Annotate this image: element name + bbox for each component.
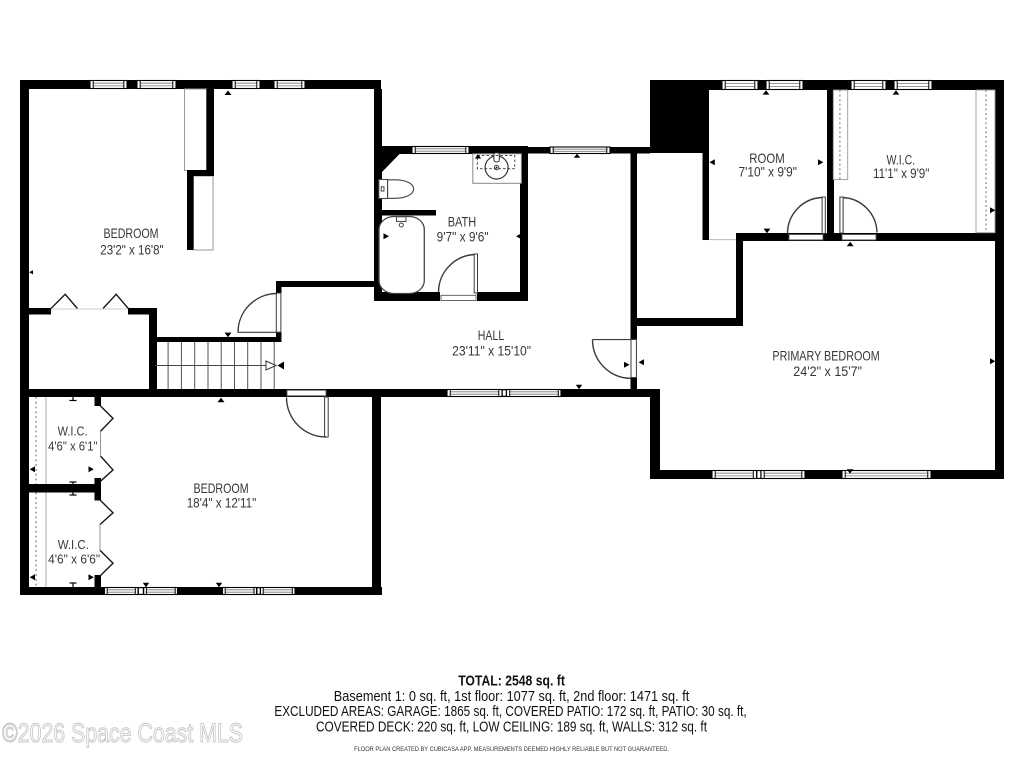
svg-text:©2026 Space Coast MLS: ©2026 Space Coast MLS <box>2 718 243 748</box>
svg-text:9'7" x 9'6": 9'7" x 9'6" <box>437 230 489 245</box>
svg-text:BEDROOM: BEDROOM <box>194 480 249 496</box>
svg-text:BATH: BATH <box>448 215 477 230</box>
svg-text:BEDROOM: BEDROOM <box>104 225 159 241</box>
svg-text:7'10" x 9'9": 7'10" x 9'9" <box>739 165 798 180</box>
svg-text:HALL: HALL <box>478 328 505 343</box>
svg-text:11'1" x 9'9": 11'1" x 9'9" <box>873 166 930 181</box>
svg-text:23'11" x 15'10": 23'11" x 15'10" <box>452 344 531 359</box>
svg-text:FLOOR PLAN CREATED BY CUBICASA: FLOOR PLAN CREATED BY CUBICASA APP. MEAS… <box>354 746 669 753</box>
svg-text:24'2" x 15'7": 24'2" x 15'7" <box>793 364 862 379</box>
svg-text:18'4" x 12'11": 18'4" x 12'11" <box>187 496 257 511</box>
svg-text:4'6" x 6'1": 4'6" x 6'1" <box>48 439 98 454</box>
svg-text:COVERED DECK: 220 sq. ft, LOW: COVERED DECK: 220 sq. ft, LOW CEILING: 1… <box>316 719 708 736</box>
svg-text:23'2" x 16'8": 23'2" x 16'8" <box>100 243 163 258</box>
svg-text:W.I.C.: W.I.C. <box>58 537 89 552</box>
svg-text:4'6" x 6'6": 4'6" x 6'6" <box>48 552 100 567</box>
svg-text:PRIMARY BEDROOM: PRIMARY BEDROOM <box>772 348 879 364</box>
svg-text:W.I.C.: W.I.C. <box>58 424 88 439</box>
